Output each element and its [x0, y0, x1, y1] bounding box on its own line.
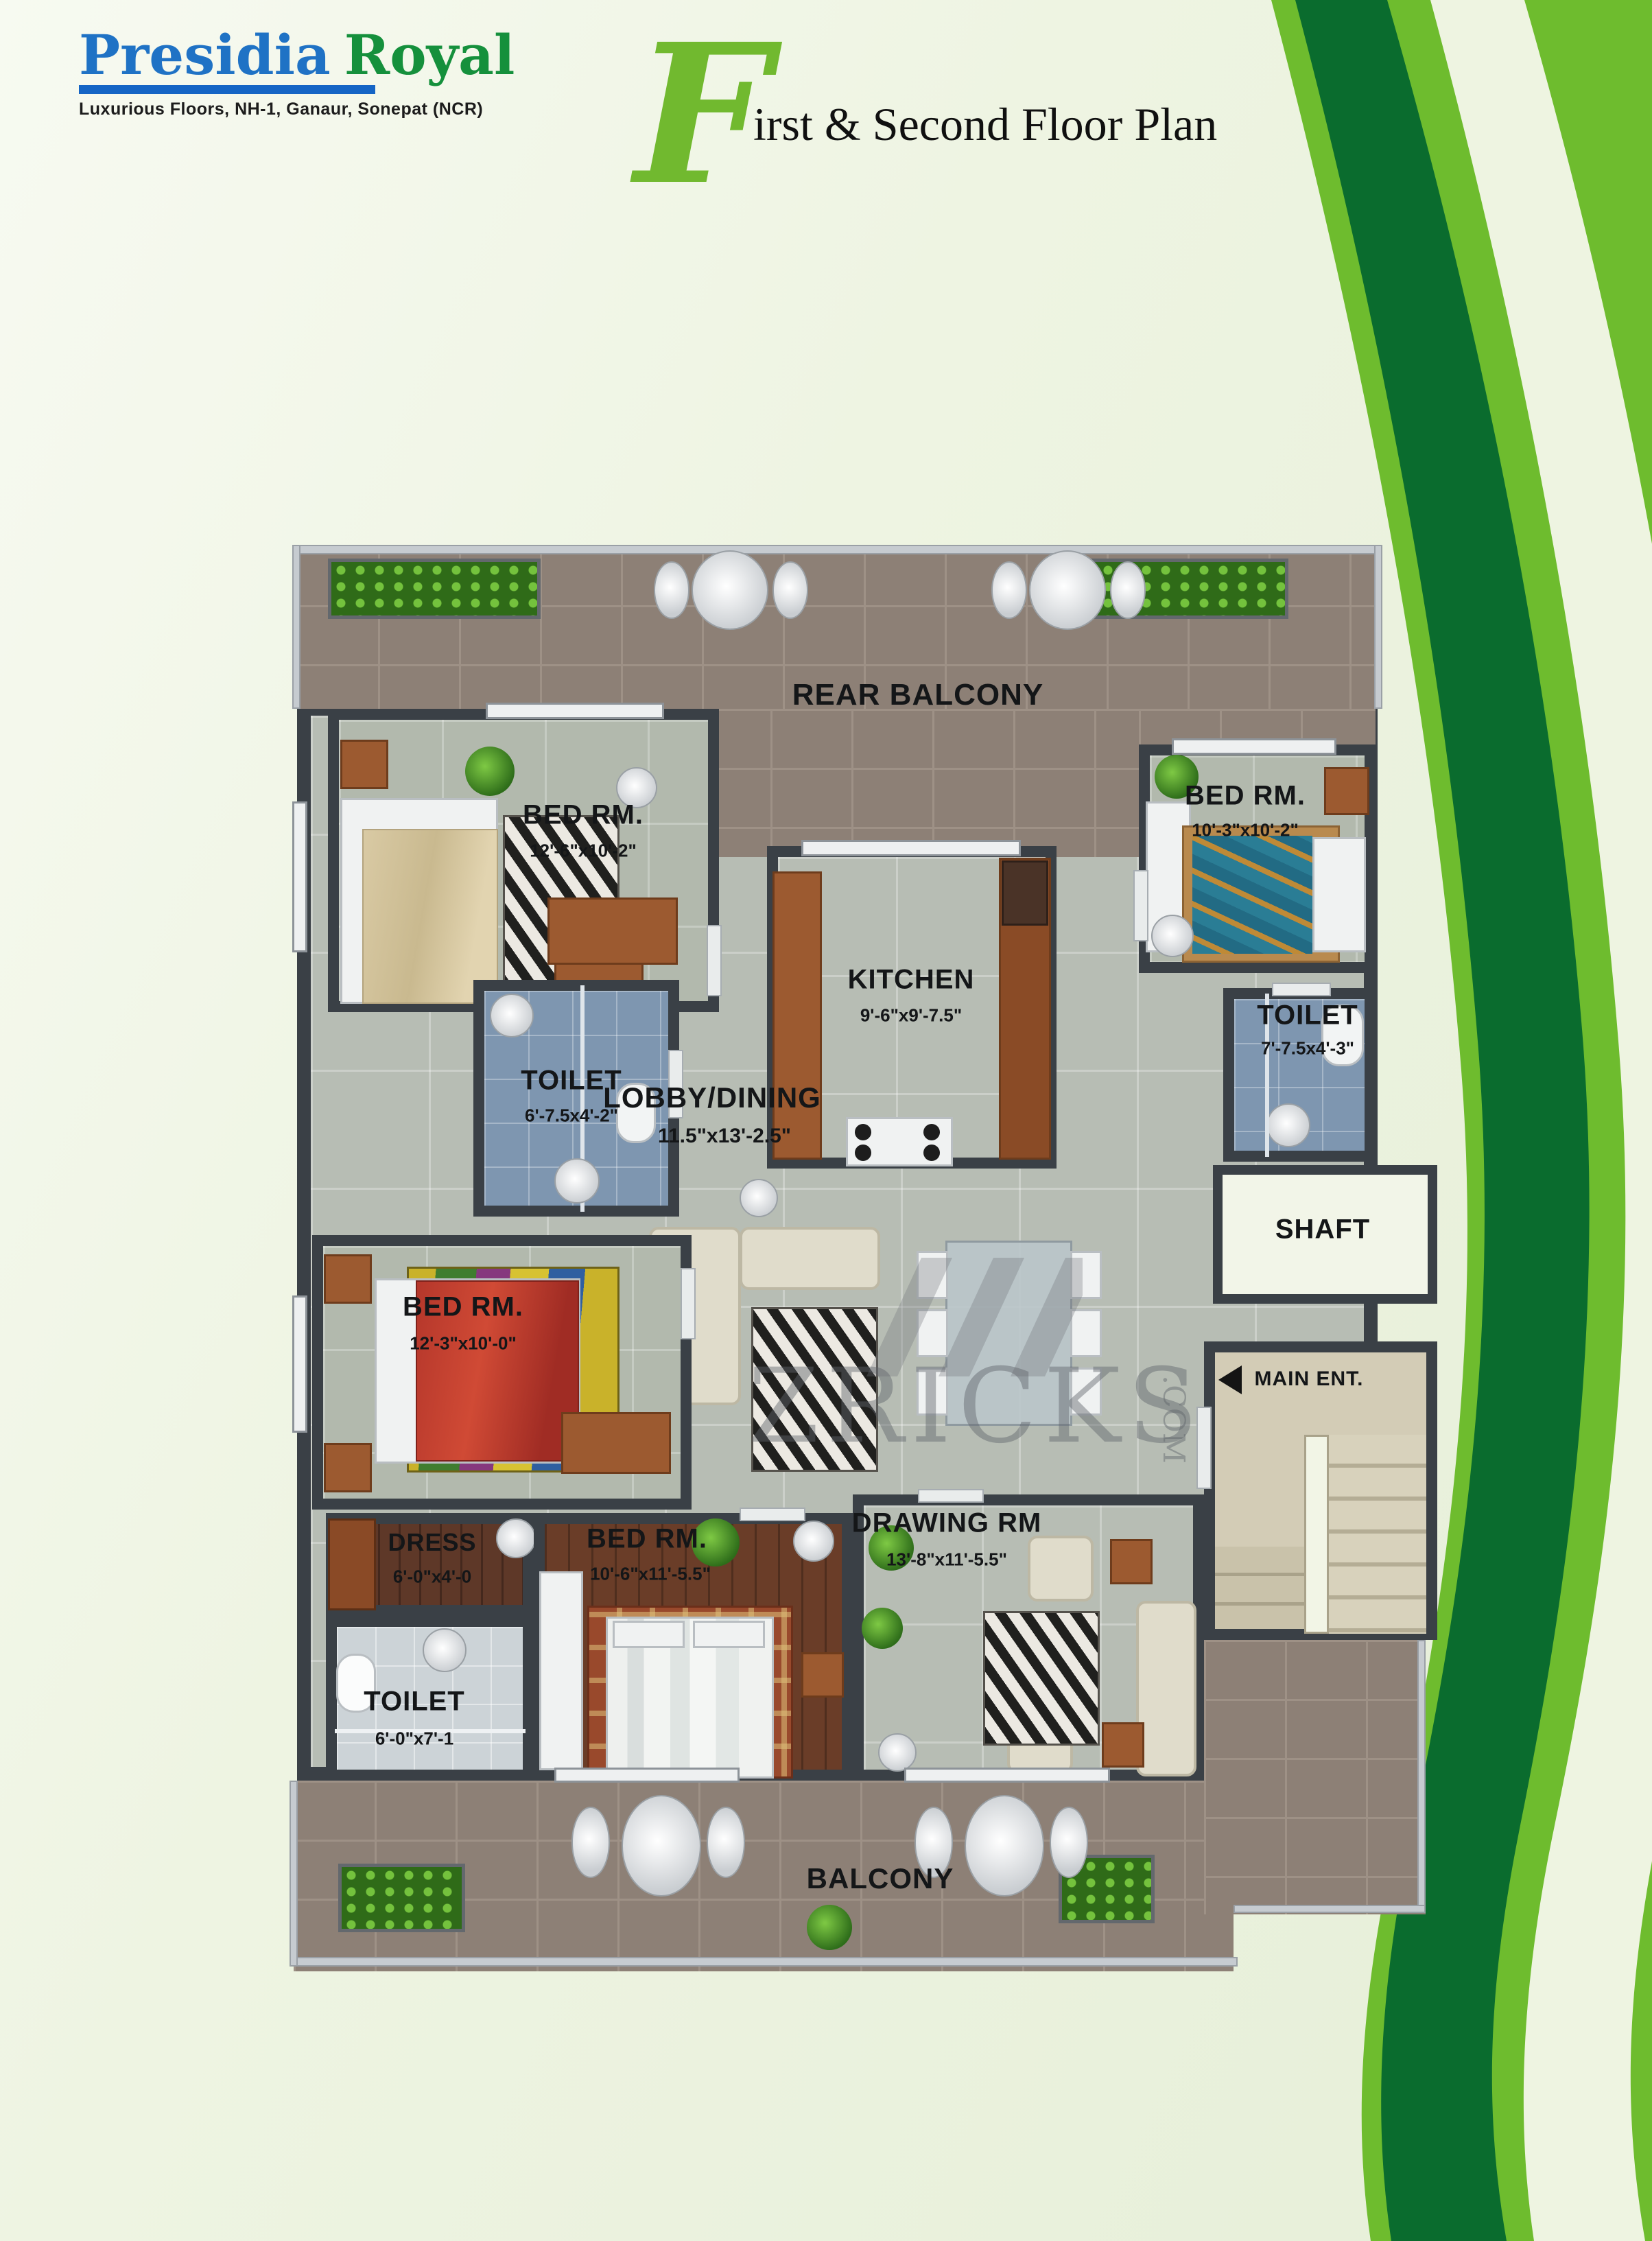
- room-dims-bed-room-1: 12'-6"x10'-2": [530, 841, 637, 862]
- side-table: [1110, 1539, 1153, 1584]
- room-label-bed-room-2: BED RM.: [1185, 781, 1306, 812]
- bed-room-2-blanket: [1192, 836, 1312, 954]
- rear-balcony-center: [689, 709, 1139, 857]
- room-label-toilet-2: TOILET: [1257, 1000, 1358, 1031]
- toilet-1-sink: [490, 994, 534, 1037]
- bed-room-1-side-window: [292, 801, 307, 952]
- bed-room-3-door: [681, 1268, 696, 1339]
- patio-chair: [772, 561, 808, 619]
- rear-balcony-railing: [292, 545, 1382, 554]
- room-dims-drawing-room: 13'-8"x11'-5.5": [886, 1549, 1007, 1571]
- room-dims-dress: 6'-0"x4'-0: [393, 1567, 471, 1588]
- balcony-plant: [807, 1905, 852, 1950]
- stair-treads: [1327, 1435, 1426, 1634]
- kitchen-counter-left: [772, 871, 822, 1160]
- patio-chair: [707, 1807, 745, 1878]
- room-label-dress: DRESS: [388, 1528, 476, 1557]
- stove-burner: [923, 1124, 940, 1140]
- watermark-text: ZRICKS: [748, 1347, 1205, 1466]
- bed-room-1-blanket: [362, 829, 498, 1004]
- planter-box: [328, 559, 541, 619]
- room-label-rear-balcony: REAR BALCONY: [792, 678, 1043, 712]
- patio-chair: [571, 1807, 610, 1878]
- logo-subtitle: Luxurious Floors, NH-1, Ganaur, Sonepat …: [79, 99, 515, 119]
- logo-wordmark: PresidiaRoyal: [79, 26, 515, 84]
- nightstand: [324, 1254, 372, 1304]
- bed-room-1-plant: [465, 747, 515, 796]
- room-label-drawing-room: DRAWING RM: [852, 1508, 1042, 1539]
- room-dims-bed-room-3: 12'-3"x10'-0": [410, 1333, 517, 1354]
- rear-balcony-railing-right: [1374, 545, 1382, 709]
- room-dims-toilet-3: 6'-0"x7'-1: [375, 1728, 453, 1750]
- nightstand: [340, 740, 388, 789]
- front-balcony-wing-railing: [1417, 1640, 1426, 1910]
- bed-room-4-pillow: [693, 1621, 765, 1648]
- patio-table: [1029, 550, 1106, 630]
- drawing-room-door: [918, 1489, 984, 1503]
- label-main-entrance: MAIN ENT.: [1255, 1368, 1364, 1391]
- bed-room-2-door: [1133, 870, 1148, 941]
- patio-chair: [654, 561, 689, 619]
- ceiling-lamp: [1151, 915, 1194, 957]
- toilet-3-sink: [423, 1628, 467, 1672]
- logo-name-secondary: Royal: [344, 23, 515, 87]
- bed-room-1-window: [486, 703, 664, 719]
- kitchen-cabinet: [1002, 860, 1048, 926]
- nightstand: [324, 1443, 372, 1492]
- room-dims-bed-room-4: 10'-6"x11'-5.5": [590, 1564, 711, 1585]
- patio-table: [692, 550, 768, 630]
- ceiling-lamp: [496, 1518, 536, 1558]
- room-label-shaft: SHAFT: [1275, 1215, 1370, 1245]
- front-balcony-wing-railing-bottom: [1234, 1905, 1426, 1913]
- brochure-page: PresidiaRoyal Luxurious Floors, NH-1, Ga…: [0, 0, 1652, 2241]
- desk: [561, 1412, 671, 1474]
- patio-table: [965, 1795, 1044, 1897]
- room-label-lobby-dining: LOBBY/DINING: [603, 1081, 821, 1114]
- nightstand: [1324, 767, 1369, 815]
- ceiling-lamp: [554, 1158, 600, 1204]
- dress-cabinet: [328, 1518, 376, 1610]
- front-balcony-wing: [1204, 1640, 1426, 1914]
- ceiling-lamp: [793, 1521, 834, 1562]
- room-dims-bed-room-2: 10'-3"x10'-2": [1192, 820, 1299, 841]
- drawing-room-window: [904, 1768, 1110, 1783]
- toilet-2-door: [1272, 983, 1331, 996]
- bed-room-4-pillow: [613, 1621, 685, 1648]
- bed-room-2-pillows: [1312, 837, 1366, 952]
- bed-room-2-window: [1172, 738, 1336, 755]
- wardrobe: [539, 1571, 583, 1770]
- room-label-toilet-3: TOILET: [364, 1687, 464, 1717]
- bed-room-4-door: [740, 1507, 805, 1521]
- page-title: irst & Second Floor Plan: [753, 97, 1217, 152]
- toilet-2-sink: [1266, 1103, 1310, 1147]
- drawing-room-sofa: [1136, 1601, 1196, 1776]
- stove-burner: [855, 1124, 871, 1140]
- stair-landing: [1215, 1547, 1304, 1629]
- nightstand: [801, 1652, 844, 1698]
- watermark-suffix: .COM: [1156, 1375, 1191, 1464]
- front-balcony-railing: [290, 1957, 1238, 1967]
- stair-divider: [1304, 1435, 1329, 1634]
- room-label-bed-room-3: BED RM.: [403, 1292, 523, 1323]
- drawing-room-plant: [862, 1608, 903, 1649]
- logo-block: PresidiaRoyal Luxurious Floors, NH-1, Ga…: [79, 26, 515, 119]
- patio-chair: [1050, 1807, 1088, 1878]
- room-dims-lobby-dining: 11.5"x13'-2.5": [658, 1125, 791, 1148]
- floor-plan: REAR BALCONY BED RM. 12'-6"x10'-2" KITCH…: [259, 541, 1437, 1976]
- room-label-bed-room-1: BED RM.: [523, 800, 644, 831]
- side-table: [1102, 1722, 1144, 1768]
- bed-room-3-window: [292, 1295, 307, 1433]
- room-label-bed-room-4: BED RM.: [587, 1524, 707, 1555]
- bed-room-1-door: [707, 925, 722, 996]
- room-label-kitchen: KITCHEN: [848, 965, 975, 996]
- front-balcony-railing-left: [290, 1781, 298, 1967]
- bath-cabinet: [547, 897, 678, 965]
- patio-chair: [1110, 561, 1146, 619]
- planter-box: [338, 1864, 465, 1932]
- stove-burner: [855, 1145, 871, 1161]
- room-label-balcony: BALCONY: [807, 1862, 954, 1895]
- room-dims-toilet-2: 7'-7.5x4'-3": [1261, 1038, 1354, 1059]
- patio-chair: [991, 561, 1027, 619]
- patio-table: [622, 1795, 701, 1897]
- stove-burner: [923, 1145, 940, 1161]
- logo-name-primary: Presidia: [79, 23, 331, 87]
- ceiling-lamp: [740, 1179, 778, 1217]
- page-title-initial: F: [635, 19, 771, 211]
- main-entrance-arrow-icon: [1218, 1365, 1242, 1394]
- drawing-room-rug: [983, 1611, 1100, 1746]
- bed-room-4-window: [554, 1768, 740, 1783]
- rear-balcony-railing-left: [292, 545, 300, 709]
- room-dims-kitchen: 9'-6"x9'-7.5": [860, 1005, 962, 1026]
- kitchen-window: [801, 840, 1021, 856]
- armchair: [1028, 1536, 1094, 1601]
- ceiling-lamp: [878, 1733, 917, 1772]
- planter-box: [1076, 559, 1288, 619]
